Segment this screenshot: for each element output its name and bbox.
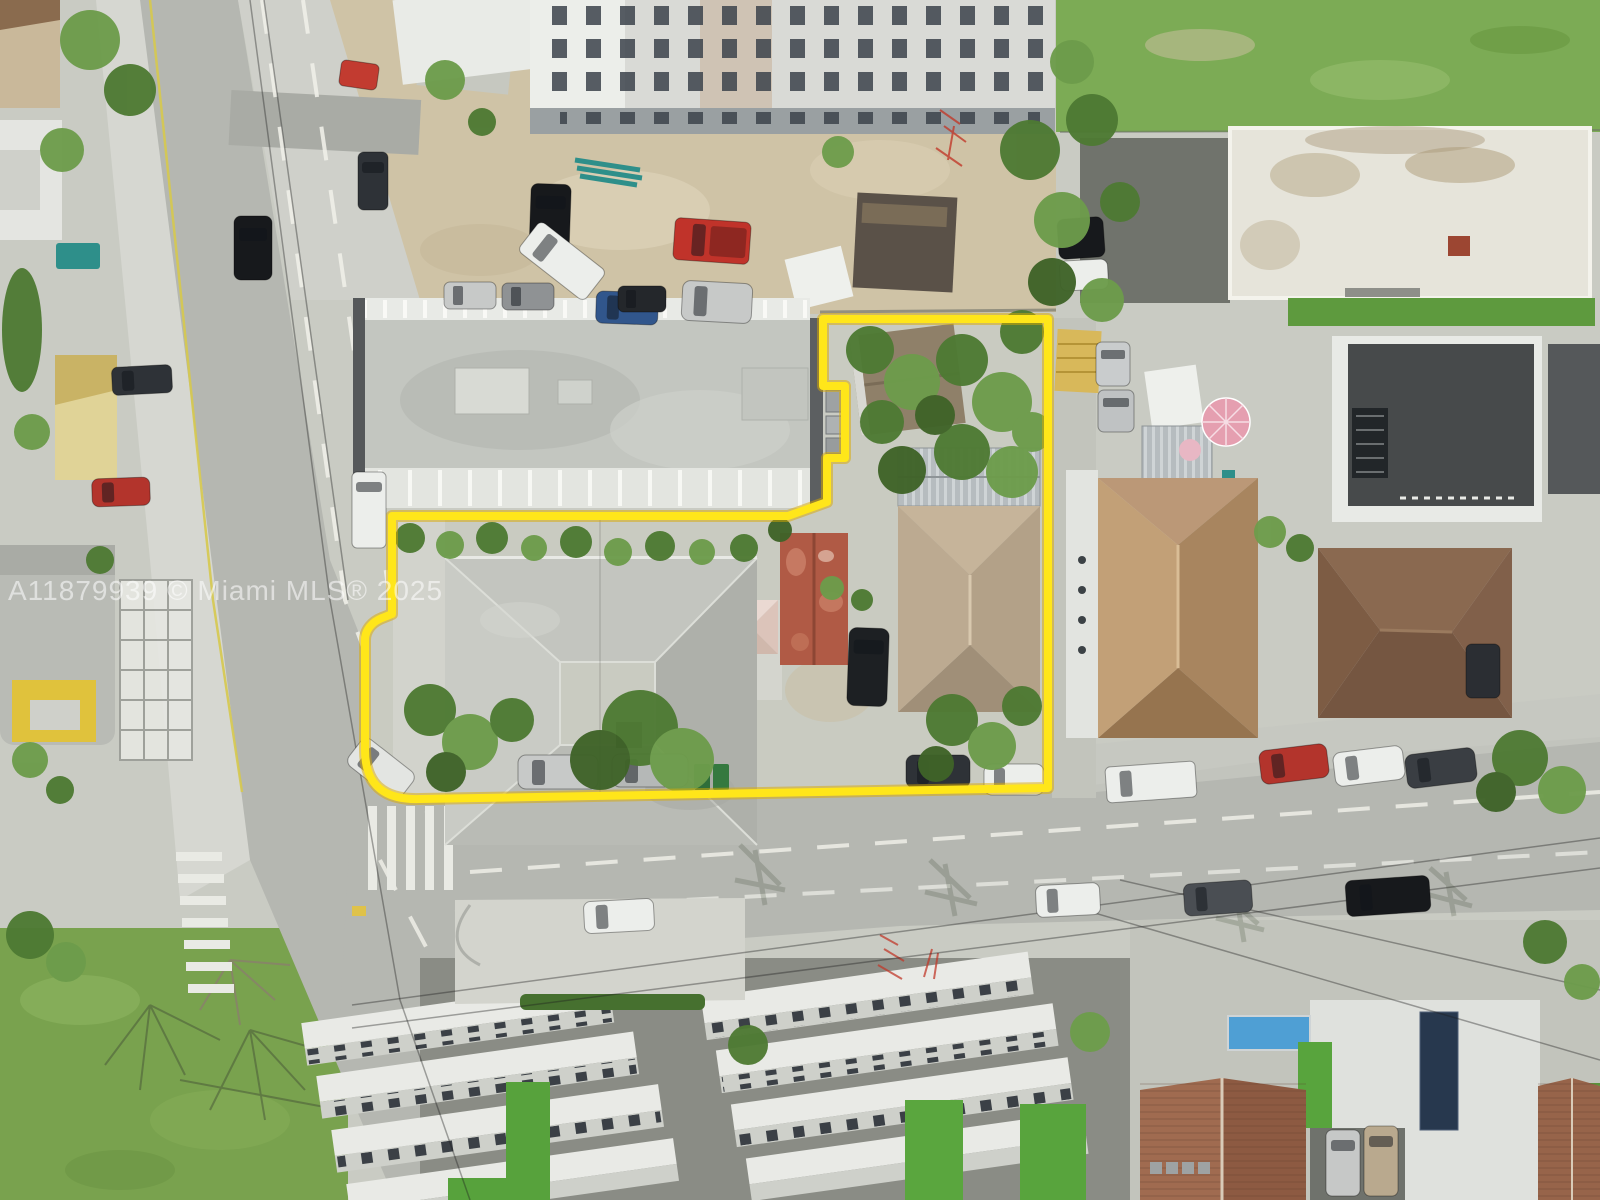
white-stained-building [1230, 126, 1590, 298]
big-flat-roof-building [353, 298, 843, 508]
grass-field-top-right [1056, 0, 1600, 132]
scaffold-grid [120, 580, 192, 760]
br-tan-car [1364, 1126, 1398, 1196]
brown-tile-roof-a [1140, 1078, 1306, 1200]
red-outbuilding [780, 533, 848, 665]
east-house-1 [1066, 470, 1258, 738]
alley-silver-2 [1098, 390, 1134, 432]
car-driving [234, 216, 272, 280]
property-dark-suv [847, 627, 890, 706]
alley-silver-1 [1096, 342, 1130, 386]
tan-hip-roof-house [898, 506, 1040, 712]
car-red-west [92, 477, 151, 507]
lot-red-pickup [673, 217, 752, 264]
lot-silver-suv [681, 280, 753, 324]
aerial-photo-canvas: A11879939 © Miami MLS® 2025 [0, 0, 1600, 1200]
lot-row-gray [502, 283, 554, 310]
car-gray-west [111, 364, 172, 395]
car-red-top [338, 59, 379, 90]
street-south-white [1035, 882, 1101, 917]
watermark: A11879939 © Miami MLS® 2025 [8, 575, 443, 606]
street-south-black-suv [1345, 875, 1431, 917]
brown-tile-roof-b [1538, 1078, 1600, 1200]
street-south-gray [1183, 880, 1253, 917]
car-parked-east [358, 152, 388, 210]
car-at-driveway [583, 898, 655, 934]
aerial-photo: A11879939 © Miami MLS® 2025 [0, 0, 1600, 1200]
br-silver-car [1326, 1130, 1360, 1196]
lot-row-silver [444, 282, 496, 309]
lot-row-black [618, 286, 666, 312]
east-drive-dark-car [1466, 644, 1500, 698]
street-white-truck [1105, 761, 1197, 803]
van-parked-east [352, 472, 386, 548]
turf-strip [1288, 298, 1595, 326]
